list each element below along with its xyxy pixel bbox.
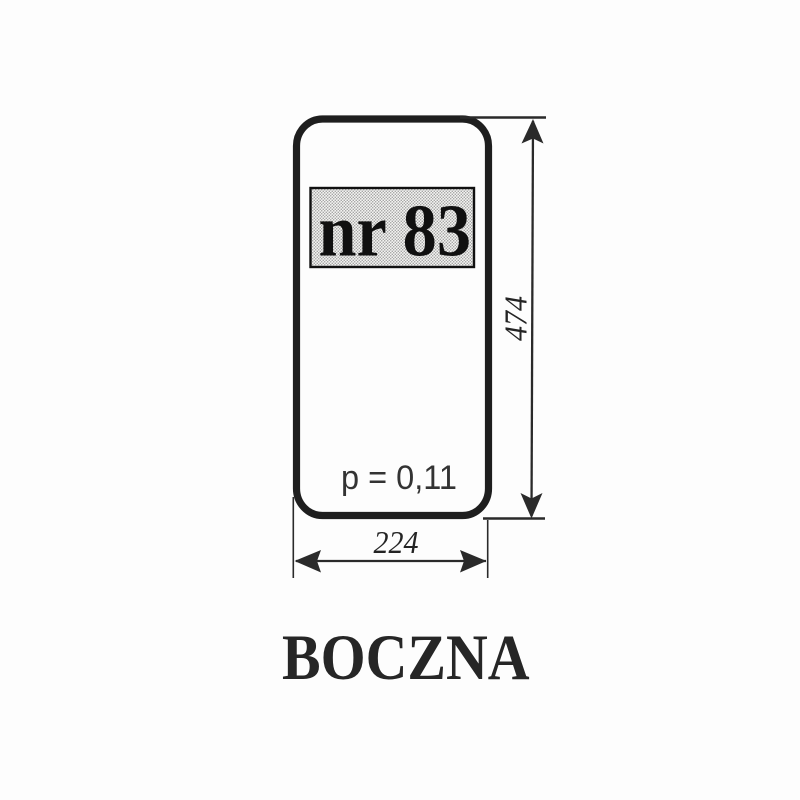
svg-text:474: 474 — [498, 296, 534, 341]
svg-text:nr 83: nr 83 — [319, 191, 472, 273]
svg-text:224: 224 — [374, 524, 419, 560]
svg-text:p = 0,11: p = 0,11 — [341, 459, 457, 497]
svg-text:BOCZNA: BOCZNA — [282, 622, 530, 694]
